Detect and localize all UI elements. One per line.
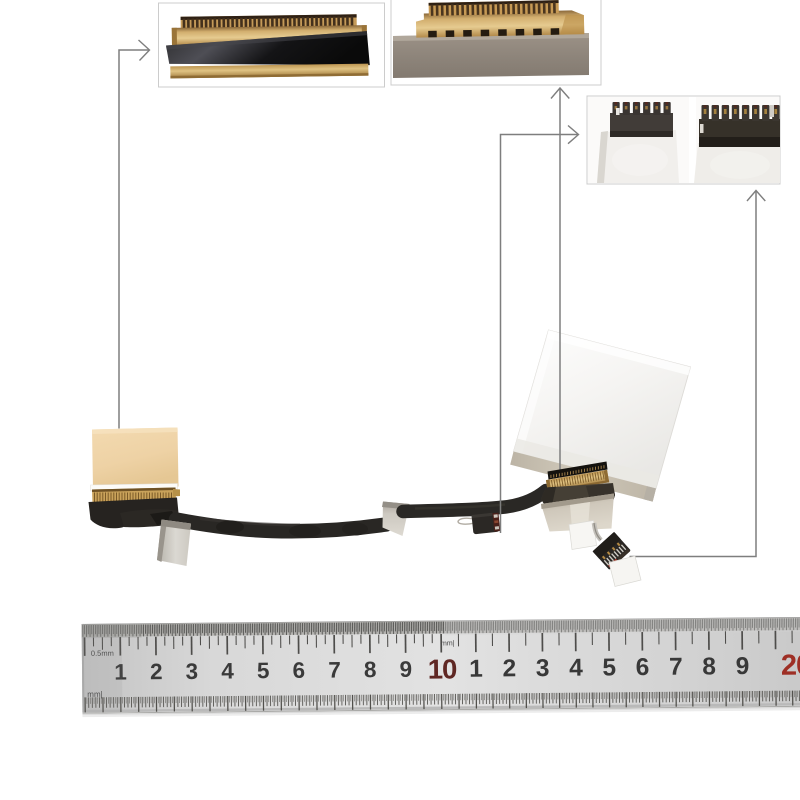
svg-text:3: 3 (185, 659, 198, 684)
svg-text:20: 20 (781, 649, 800, 681)
svg-text:2: 2 (150, 659, 163, 684)
svg-text:7: 7 (669, 654, 683, 681)
svg-text:8: 8 (702, 653, 716, 680)
svg-text:4: 4 (221, 658, 234, 683)
svg-text:6: 6 (636, 654, 650, 681)
svg-text:5: 5 (257, 658, 270, 683)
svg-text:1: 1 (469, 656, 483, 683)
svg-text:2: 2 (502, 655, 516, 682)
svg-text:3: 3 (536, 655, 550, 682)
svg-text:6: 6 (292, 658, 305, 683)
svg-text:mm|: mm| (441, 638, 455, 647)
svg-text:4: 4 (569, 655, 583, 682)
svg-text:9: 9 (399, 657, 412, 682)
svg-text:8: 8 (364, 657, 377, 682)
svg-text:10: 10 (428, 653, 458, 684)
svg-text:5: 5 (602, 654, 616, 681)
svg-text:7: 7 (328, 657, 341, 682)
svg-text:9: 9 (735, 653, 749, 680)
